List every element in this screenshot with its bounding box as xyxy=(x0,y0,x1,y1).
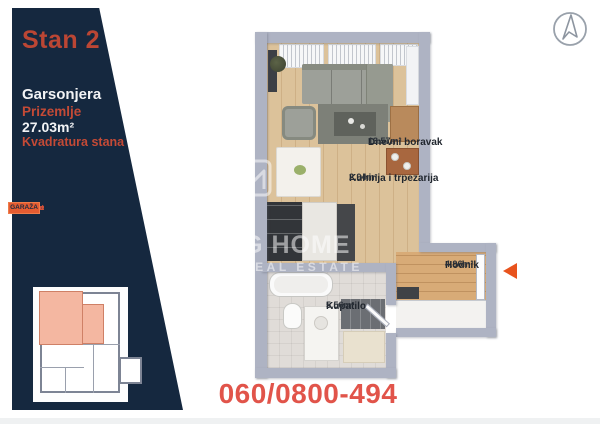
table-decor xyxy=(348,118,354,124)
wall xyxy=(386,263,396,305)
bar-stool xyxy=(403,162,411,170)
bathroom-cabinet xyxy=(343,331,385,363)
area-caption: Kvadratura stana xyxy=(22,135,124,149)
dining-bar xyxy=(386,148,419,175)
apartment-title: Stan 2 xyxy=(22,26,100,55)
area-value: 27.03m² xyxy=(22,119,74,135)
wall xyxy=(255,32,430,43)
bathroom-vanity xyxy=(304,306,339,361)
island-plant xyxy=(294,165,306,175)
bathtub-inner xyxy=(274,276,328,293)
wall xyxy=(486,243,496,337)
plant xyxy=(270,56,286,72)
coffee-table xyxy=(334,112,376,136)
wall xyxy=(255,368,396,378)
room-area: 2.94m² xyxy=(349,172,378,184)
curtain xyxy=(406,46,419,105)
miniplan-highlighted-unit xyxy=(83,304,104,344)
wall xyxy=(396,328,496,337)
armchair xyxy=(282,106,316,140)
sink-basin xyxy=(314,316,328,330)
floor-label: Prizemlje xyxy=(22,104,81,119)
toilet xyxy=(283,303,302,329)
contact-phone-number: 060/0800-494 xyxy=(198,378,418,410)
door-mat xyxy=(397,287,419,299)
entrance-arrow-icon xyxy=(503,263,517,279)
entry-floor xyxy=(396,300,486,328)
unit-type-label: Garsonjera xyxy=(22,86,101,103)
unit-cell-garaza[interactable]: GARAŽA xyxy=(8,202,40,214)
room-area: 13.57m² xyxy=(368,136,402,148)
bottom-divider xyxy=(0,418,600,424)
north-compass-icon xyxy=(550,9,590,51)
miniplan-annex xyxy=(119,357,142,384)
room-area: 4.96m² xyxy=(445,259,474,271)
building-overview-miniplan xyxy=(33,287,128,402)
floor-plan-page: Stan 2 Garsonjera Prizemlje 27.03m² Kvad… xyxy=(0,0,600,424)
table-decor xyxy=(360,124,365,129)
miniplan-highlighted-unit xyxy=(39,291,83,345)
watermark-brand-tagline: REAL ESTATE xyxy=(243,260,363,274)
room-area: 5.56m² xyxy=(326,300,355,312)
wall xyxy=(255,32,267,378)
wall xyxy=(419,243,496,252)
brand-logo-watermark xyxy=(236,157,272,197)
bar-stool xyxy=(391,153,399,161)
watermark-brand-name: BG HOME xyxy=(224,231,350,260)
